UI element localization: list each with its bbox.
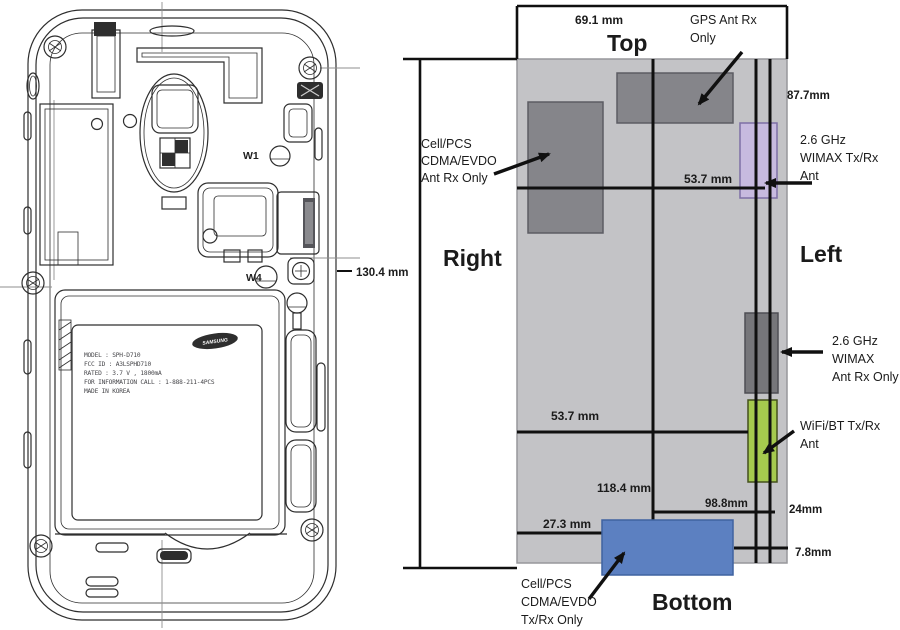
screw-icon (30, 535, 52, 557)
ref-label-w4: W4 (246, 272, 262, 284)
spring-post (287, 293, 307, 329)
gps-antenna-zone (617, 73, 733, 123)
cell-rx-antenna-zone (528, 102, 603, 233)
battery-label-line: MADE IN KOREA (84, 388, 130, 395)
gps-label: Only (690, 31, 716, 45)
dim-height: 130.4 mm (356, 267, 408, 279)
side-label-top: Top (607, 30, 647, 56)
right-connector (284, 104, 312, 142)
wifi-bt-label: WiFi/BT Tx/Rx (800, 419, 881, 433)
screw-icon (44, 36, 66, 58)
phone-outer-outline (28, 10, 336, 620)
phone-cavity-outline (50, 33, 314, 603)
wimax-txrx-label: 2.6 GHz (800, 133, 846, 147)
dark-connector (297, 82, 323, 99)
dim-78: 7.8mm (795, 547, 831, 559)
wifi-bt-antenna-zone (748, 400, 777, 482)
contact-post (270, 146, 290, 166)
samsung-logo: SAMSUNG (191, 330, 239, 351)
battery-label-line: MODEL : SPH-D710 (84, 352, 141, 359)
cell-txrx-label: Tx/Rx Only (521, 613, 584, 627)
dim-537-upper: 53.7 mm (684, 172, 732, 186)
wimax-rx-label: Ant Rx Only (832, 370, 899, 384)
dim-877: 87.7mm (787, 90, 830, 102)
side-connectors (286, 330, 316, 512)
cell-rx-label: Ant Rx Only (421, 171, 488, 185)
fcc-antenna-location-figure: W1 W4 (0, 0, 900, 630)
dim-top-width: 69.1 mm (575, 13, 623, 27)
battery-label-line: RATED : 3.7 V , 1800mA (84, 370, 162, 377)
ref-label-w1: W1 (243, 150, 259, 162)
camera-module (124, 74, 209, 209)
wifi-bt-label: Ant (800, 437, 819, 451)
side-label-left: Left (800, 241, 843, 267)
battery-label-line: FCC ID : A3LSPHD710 (84, 361, 151, 368)
boxed-screw (288, 258, 314, 284)
battery-label-line: FOR INFORMATION CALL : 1-888-211-4PCS (84, 379, 215, 386)
stem-cap (94, 22, 116, 36)
cover-tab (96, 543, 128, 552)
component-label-module (277, 192, 319, 254)
cell-txrx-label: CDMA/EVDO (521, 595, 597, 609)
top-left-stem (92, 22, 120, 98)
side-label-bottom: Bottom (652, 589, 732, 615)
cell-txrx-antenna-zone (602, 520, 733, 575)
wimax-rx-label: WIMAX (832, 352, 875, 366)
gps-label: GPS Ant Rx (690, 13, 757, 27)
bottom-details (55, 533, 287, 597)
speaker-slot (86, 577, 118, 586)
cell-txrx-label: Cell/PCS (521, 577, 572, 591)
cell-rx-label: Cell/PCS (421, 137, 472, 151)
dim-24: 24mm (789, 504, 822, 516)
earpiece-slot (150, 26, 194, 36)
wimax-rx-label: 2.6 GHz (832, 334, 878, 348)
power-button (317, 363, 325, 431)
phone-internals-drawing: W1 W4 (0, 2, 360, 628)
side-label-right: Right (443, 245, 502, 271)
screw-icon (22, 272, 44, 294)
dim-273: 27.3 mm (543, 517, 591, 531)
cell-rx-label: CDMA/EVDO (421, 154, 497, 168)
screw-icon (301, 519, 323, 541)
speaker-slot (86, 589, 118, 597)
sim-module (198, 183, 278, 262)
wimax-rx-antenna-zone (745, 313, 778, 393)
wimax-txrx-label: WIMAX Tx/Rx (800, 151, 879, 165)
side-cutout (27, 73, 39, 99)
dim-988: 98.8mm (705, 498, 748, 510)
screw-icon (299, 57, 321, 79)
battery: SAMSUNG MODEL : SPH-D710 FCC ID : A3LSPH… (55, 290, 285, 535)
dim-1184: 118.4 mm (597, 481, 651, 495)
dim-537-lower: 53.7 mm (551, 409, 599, 423)
pcb-block (40, 104, 113, 265)
antenna-placement-diagram: 69.1 mm Top GPS Ant Rx Only 87.7mm Cell/… (337, 6, 899, 627)
wimax-txrx-label: Ant (800, 169, 819, 183)
right-bezel-slot (315, 128, 322, 160)
